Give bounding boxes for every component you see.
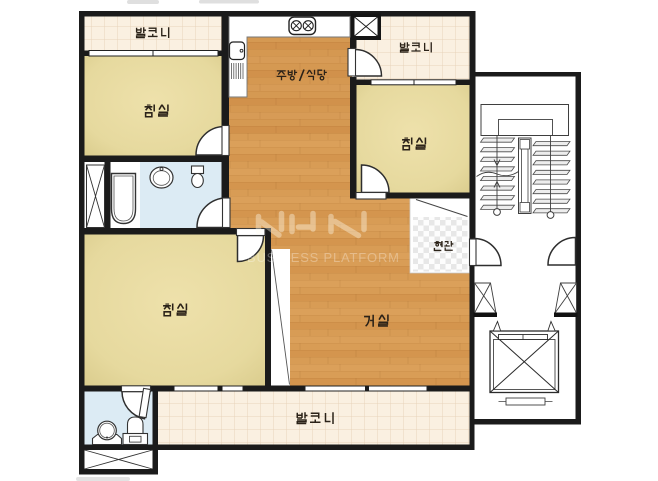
svg-text:BUSINESS PLATFORM: BUSINESS PLATFORM: [247, 250, 400, 265]
